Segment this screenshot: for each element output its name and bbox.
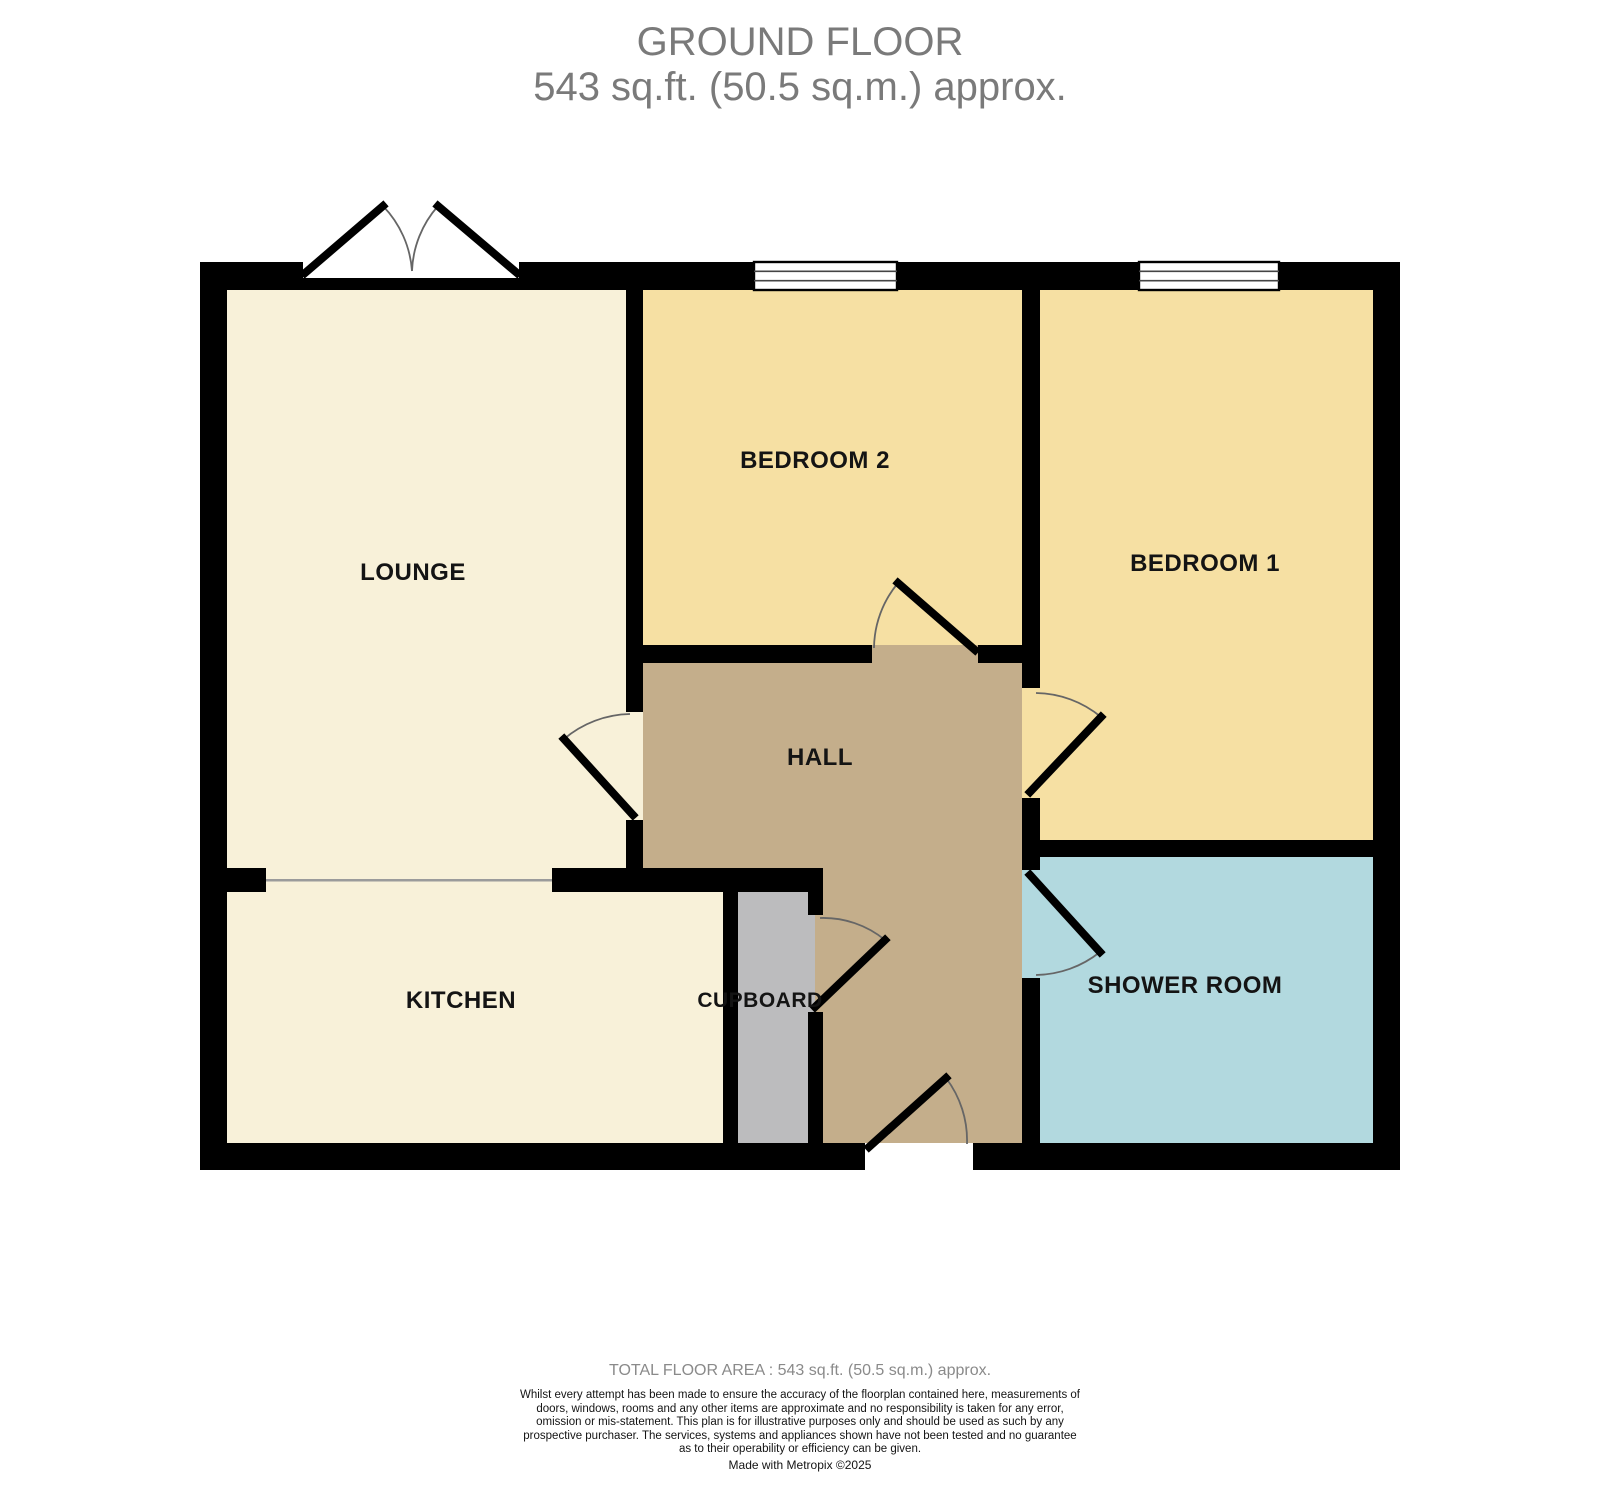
disclaimer-text: Whilst every attempt has been made to en… [519,1389,1081,1457]
bedroom2-window-frame [754,262,897,290]
wall-kitchen-cupboard [723,892,738,1143]
lounge-kitchen-divider-line [266,879,552,882]
metropix-credit: Made with Metropix ©2025 [0,1458,1600,1472]
kitchen-label: KITCHEN [406,987,516,1014]
cupboard-label: CUPBOARD [697,989,822,1012]
bedroom1-window-frame [1139,262,1279,290]
total-floor-area: TOTAL FLOOR AREA : 543 sq.ft. (50.5 sq.m… [0,1362,1600,1380]
wall-bedroom1-left-lower [1022,798,1040,870]
wall-kitchen-top [552,868,823,892]
bedroom2-label: BEDROOM 2 [740,447,890,474]
french-door-left-arc [383,206,412,271]
wall-bedroom2-hall [643,645,872,663]
front-door-opening [865,1143,973,1170]
wall-bedroom1-shower [1022,840,1373,857]
wall-exterior-left [200,262,227,1170]
wall-shower-left [1022,978,1040,1143]
wall-cupboard-right-lower [808,1012,823,1143]
bedroom1-label: BEDROOM 1 [1130,550,1280,577]
wall-lounge-hall-upper [626,290,643,712]
wall-bedroom1-left-upper [1022,290,1040,688]
hall-label: HALL [787,744,853,771]
french-door-right-arc [412,206,438,271]
room-cupboard-floor [731,892,815,1143]
floorplan-drawing: LOUNGE BEDROOM 2 BEDROOM 1 HALL KITCHEN … [0,0,1600,1497]
floorplan-page: GROUND FLOOR 543 sq.ft. (50.5 sq.m.) app… [0,0,1600,1497]
lounge-label: LOUNGE [360,559,466,586]
plan-footer: TOTAL FLOOR AREA : 543 sq.ft. (50.5 sq.m… [0,1362,1600,1484]
wall-cupboard-right-upper [808,892,823,915]
wall-exterior-right [1373,262,1400,1170]
bedroom1-window [1139,262,1279,290]
shower-room-label: SHOWER ROOM [1088,972,1283,999]
bedroom2-window [754,262,897,290]
wall-exterior-bottom [200,1143,1400,1170]
wall-bedroom2-hall-stub [978,645,1022,663]
room-floors [214,278,1378,1143]
wall-kitchen-stub-left [200,868,266,892]
